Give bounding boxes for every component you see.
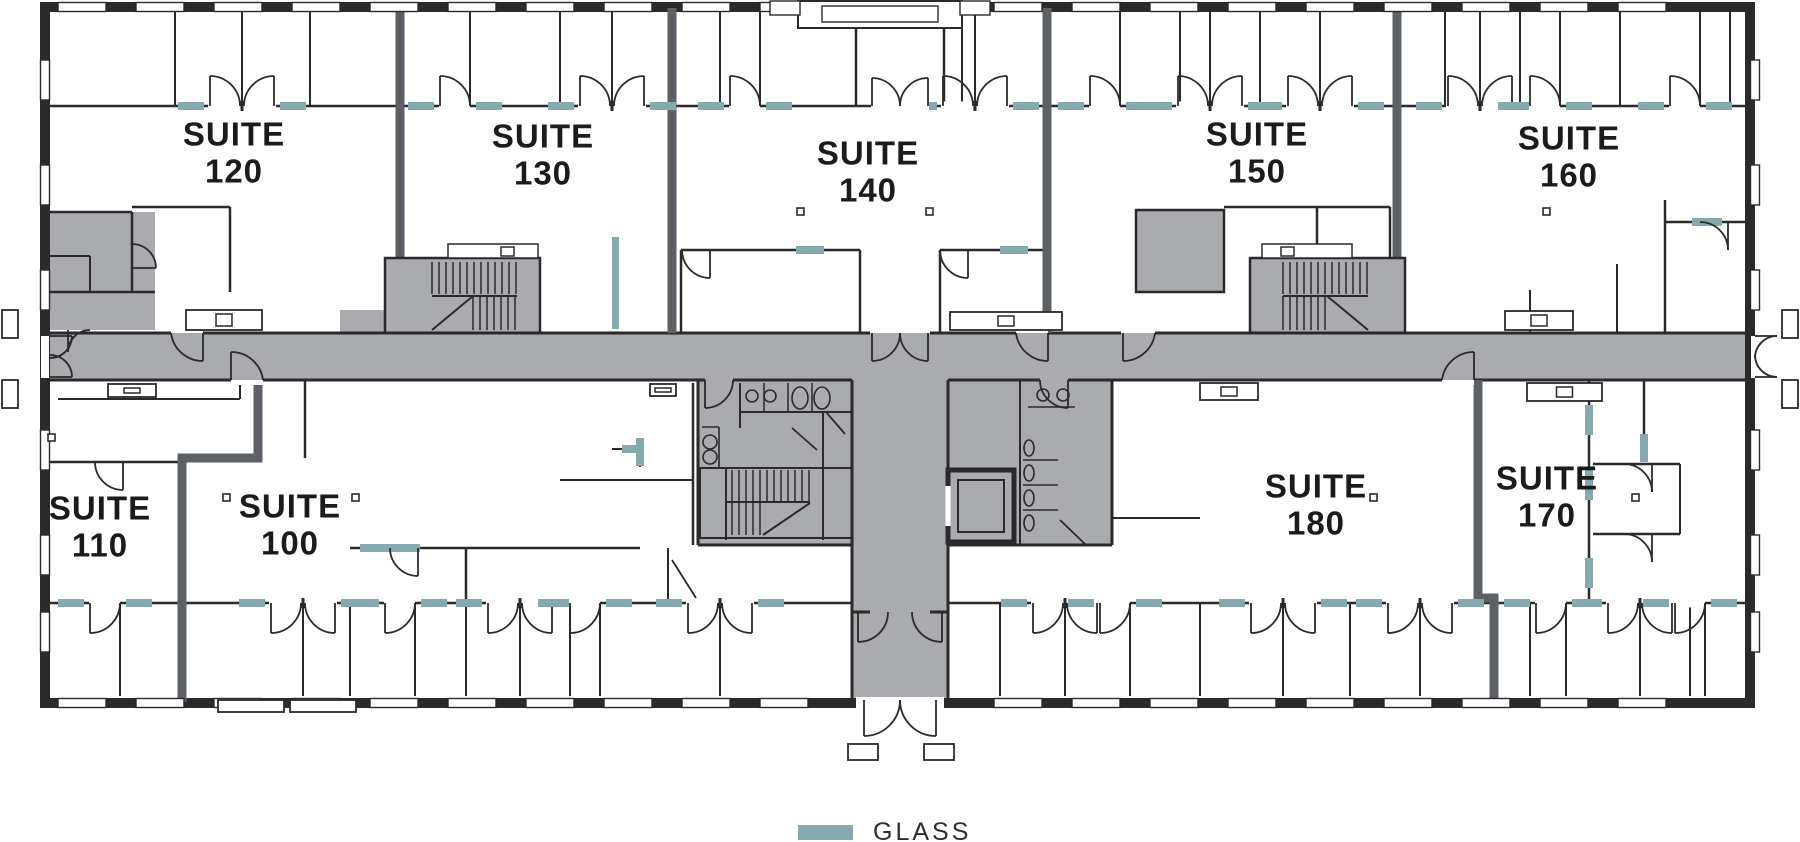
suite-label-120: SUITE120 <box>183 116 285 191</box>
suite-number: 120 <box>183 153 285 190</box>
suite-number: 130 <box>492 155 594 192</box>
suite-number: 170 <box>1496 497 1598 534</box>
suite-word: SUITE <box>817 135 919 172</box>
suite-number: 140 <box>817 172 919 209</box>
suite-word: SUITE <box>492 118 594 155</box>
suite-word: SUITE <box>1265 468 1367 505</box>
suite-word: SUITE <box>49 490 151 527</box>
suite-word: SUITE <box>1496 460 1598 497</box>
suite-label-160: SUITE160 <box>1518 120 1620 195</box>
suite-word: SUITE <box>1206 116 1308 153</box>
suite-label-130: SUITE130 <box>492 118 594 193</box>
legend: GLASS <box>798 818 971 842</box>
suite-number: 100 <box>239 525 341 562</box>
suite-number: 160 <box>1518 157 1620 194</box>
suite-number: 180 <box>1265 505 1367 542</box>
suite-label-180: SUITE180 <box>1265 468 1367 543</box>
suite-label-150: SUITE150 <box>1206 116 1308 191</box>
suite-word: SUITE <box>1518 120 1620 157</box>
suite-label-170: SUITE170 <box>1496 460 1598 535</box>
suite-word: SUITE <box>183 116 285 153</box>
legend-label: GLASS <box>873 818 971 842</box>
suite-label-140: SUITE140 <box>817 135 919 210</box>
suite-number: 110 <box>49 527 151 564</box>
glass-swatch-icon <box>798 825 853 840</box>
floor-plan: SUITE120 SUITE130 SUITE140 SUITE150 SUIT… <box>0 0 1800 842</box>
suite-label-100: SUITE100 <box>239 488 341 563</box>
suite-number: 150 <box>1206 153 1308 190</box>
suite-word: SUITE <box>239 488 341 525</box>
suite-label-110: SUITE110 <box>49 490 151 565</box>
